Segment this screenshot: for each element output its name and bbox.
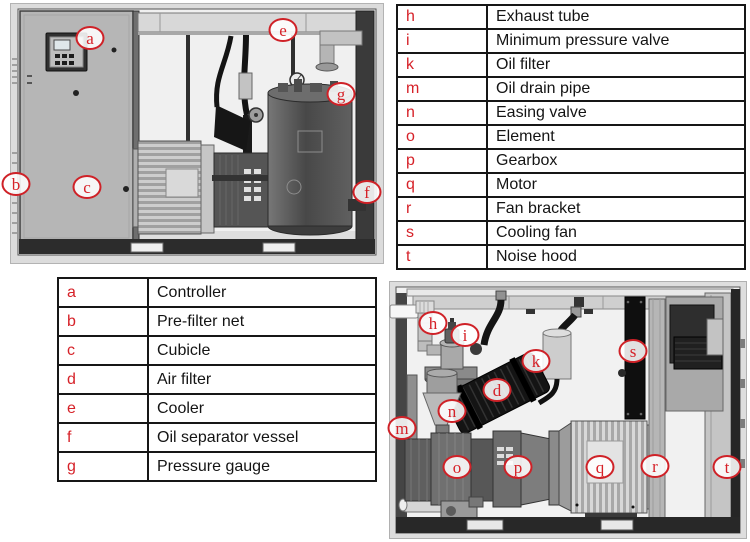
callout-a: a bbox=[76, 26, 105, 50]
table-row: dAir filter bbox=[58, 365, 376, 394]
front-view-figure: a e g b c f bbox=[10, 3, 384, 264]
fan-bracket bbox=[649, 299, 665, 525]
part-key: c bbox=[58, 336, 148, 365]
part-key: b bbox=[58, 307, 148, 336]
motor bbox=[133, 141, 214, 234]
callout-b: b bbox=[2, 172, 31, 196]
base-frame bbox=[19, 239, 375, 254]
callout-d: d bbox=[483, 378, 512, 402]
callout-p: p bbox=[504, 455, 533, 479]
callout-o: o bbox=[443, 455, 472, 479]
table-row: nEasing valve bbox=[397, 101, 745, 125]
table-row: kOil filter bbox=[397, 53, 745, 77]
part-key: d bbox=[58, 365, 148, 394]
table-row: tNoise hood bbox=[397, 245, 745, 269]
part-label: Minimum pressure valve bbox=[487, 29, 745, 53]
part-label: Pre-filter net bbox=[148, 307, 376, 336]
part-key: s bbox=[397, 221, 487, 245]
right-frame-strip bbox=[731, 289, 740, 533]
table-row: iMinimum pressure valve bbox=[397, 29, 745, 53]
callout-q: q bbox=[586, 455, 615, 479]
callout-f: f bbox=[353, 180, 382, 204]
part-label: Cooling fan bbox=[487, 221, 745, 245]
callout-h: h bbox=[419, 311, 448, 335]
part-label: Cubicle bbox=[148, 336, 376, 365]
part-label: Exhaust tube bbox=[487, 5, 745, 29]
table-row: aController bbox=[58, 278, 376, 307]
part-label: Fan bracket bbox=[487, 197, 745, 221]
table-row: bPre-filter net bbox=[58, 307, 376, 336]
part-label: Motor bbox=[487, 173, 745, 197]
part-label: Element bbox=[487, 125, 745, 149]
table-row: cCubicle bbox=[58, 336, 376, 365]
callout-i: i bbox=[451, 323, 480, 347]
parts-legend-h-t: hExhaust tube iMinimum pressure valve kO… bbox=[396, 4, 746, 270]
part-key: r bbox=[397, 197, 487, 221]
table-row: eCooler bbox=[58, 394, 376, 423]
callout-k: k bbox=[522, 349, 551, 373]
table-row: oElement bbox=[397, 125, 745, 149]
part-label: Oil filter bbox=[487, 53, 745, 77]
part-label: Noise hood bbox=[487, 245, 745, 269]
part-key: i bbox=[397, 29, 487, 53]
part-label: Air filter bbox=[148, 365, 376, 394]
callout-m: m bbox=[388, 416, 417, 440]
callout-n: n bbox=[438, 399, 467, 423]
part-label: Easing valve bbox=[487, 101, 745, 125]
part-key: q bbox=[397, 173, 487, 197]
table-row: rFan bracket bbox=[397, 197, 745, 221]
part-key: a bbox=[58, 278, 148, 307]
table-row: pGearbox bbox=[397, 149, 745, 173]
base-frame bbox=[396, 517, 740, 533]
part-key: g bbox=[58, 452, 148, 481]
table-row: gPressure gauge bbox=[58, 452, 376, 481]
part-key: o bbox=[397, 125, 487, 149]
gearbox-coupling bbox=[212, 153, 270, 227]
part-key: k bbox=[397, 53, 487, 77]
callout-t: t bbox=[713, 455, 742, 479]
table-row: sCooling fan bbox=[397, 221, 745, 245]
callout-r: r bbox=[641, 454, 670, 478]
part-label: Controller bbox=[148, 278, 376, 307]
part-label: Gearbox bbox=[487, 149, 745, 173]
table-row: hExhaust tube bbox=[397, 5, 745, 29]
part-key: e bbox=[58, 394, 148, 423]
part-key: m bbox=[397, 77, 487, 101]
part-label: Oil drain pipe bbox=[487, 77, 745, 101]
internal-view-figure: h i k d n m o p q r s t bbox=[389, 281, 747, 539]
callout-c: c bbox=[73, 175, 102, 199]
part-key: n bbox=[397, 101, 487, 125]
part-label: Oil separator vessel bbox=[148, 423, 376, 452]
parts-legend-a-g: aController bPre-filter net cCubicle dAi… bbox=[57, 277, 377, 482]
part-key: p bbox=[397, 149, 487, 173]
table-row: fOil separator vessel bbox=[58, 423, 376, 452]
callout-g: g bbox=[327, 82, 356, 106]
part-key: t bbox=[397, 245, 487, 269]
callout-e: e bbox=[269, 18, 298, 42]
part-key: f bbox=[58, 423, 148, 452]
table-row: qMotor bbox=[397, 173, 745, 197]
part-key: h bbox=[397, 5, 487, 29]
callout-s: s bbox=[619, 339, 648, 363]
table-row: mOil drain pipe bbox=[397, 77, 745, 101]
fan-motor-assembly bbox=[666, 297, 723, 411]
part-label: Cooler bbox=[148, 394, 376, 423]
part-label: Pressure gauge bbox=[148, 452, 376, 481]
compressor-front-render bbox=[10, 3, 384, 264]
